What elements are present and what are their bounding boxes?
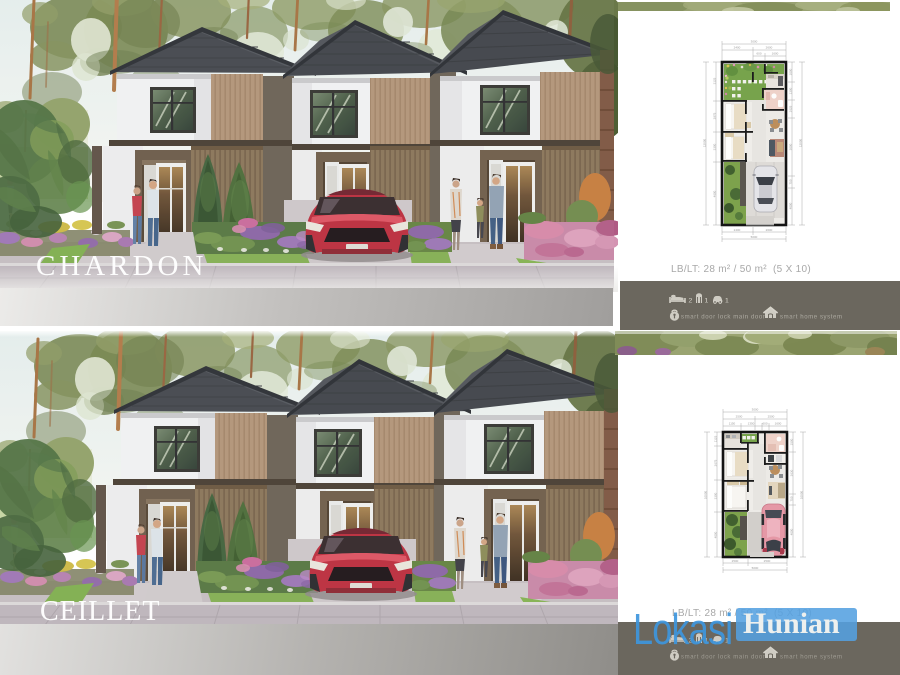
svg-text:600: 600 [756,52,761,56]
svg-text:10000: 10000 [703,490,707,499]
svg-text:1150: 1150 [729,422,736,426]
svg-text:1600: 1600 [772,52,779,56]
svg-text:1350: 1350 [748,422,755,426]
svg-text:3000: 3000 [751,40,758,44]
svg-text:3125: 3125 [712,77,716,84]
svg-text:750: 750 [788,179,792,184]
svg-text:2600: 2600 [766,46,773,50]
svg-text:750: 750 [789,496,793,501]
svg-text:10000: 10000 [799,490,803,499]
svg-text:4600: 4600 [712,190,716,197]
svg-text:3630: 3630 [789,469,793,476]
svg-text:1500: 1500 [789,438,793,445]
svg-text:3000: 3000 [752,408,759,412]
svg-text:1125: 1125 [713,435,717,442]
svg-text:2400: 2400 [734,46,741,50]
svg-text:1000: 1000 [788,68,792,75]
svg-text:2675: 2675 [713,459,717,466]
svg-text:2500: 2500 [768,415,775,419]
svg-text:12000: 12000 [798,138,802,147]
svg-text:3000: 3000 [788,143,792,150]
svg-text:4000: 4000 [789,528,793,535]
svg-text:12000: 12000 [702,138,706,147]
svg-text:2975: 2975 [712,112,716,119]
svg-text:1600: 1600 [775,422,782,426]
svg-text:2400: 2400 [734,228,741,232]
svg-text:1300: 1300 [788,87,792,94]
svg-text:5000: 5000 [752,566,759,570]
svg-text:2600: 2600 [766,228,773,232]
svg-text:4000: 4000 [713,531,717,538]
svg-text:5000: 5000 [751,235,758,239]
svg-text:1625: 1625 [788,105,792,112]
svg-text:3300: 3300 [712,143,716,150]
svg-text:4000: 4000 [788,202,792,209]
svg-text:600: 600 [762,422,767,426]
svg-text:2500: 2500 [764,559,771,563]
svg-text:2500: 2500 [736,415,743,419]
svg-text:2500: 2500 [732,559,739,563]
svg-text:3300: 3300 [713,492,717,499]
